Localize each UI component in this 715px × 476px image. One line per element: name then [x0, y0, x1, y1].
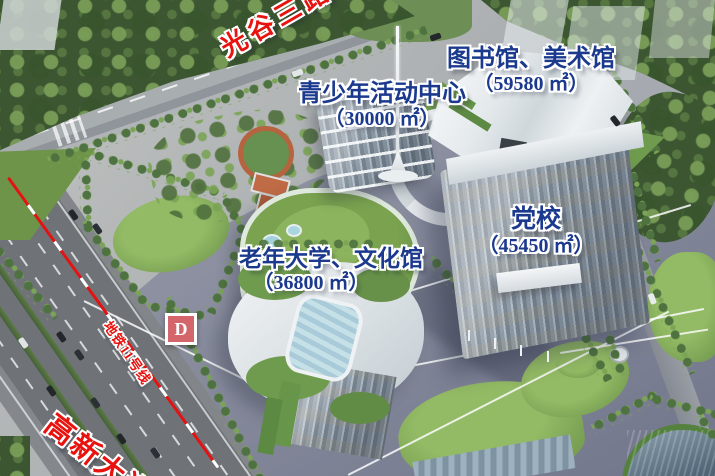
water-ripples	[627, 430, 715, 476]
tree-row	[79, 157, 96, 225]
label-elderly-culture: 老年大学、文化馆 （36800 ㎡）	[181, 245, 481, 296]
building-name: 老年大学、文化馆	[181, 245, 481, 272]
building-area: （59580 ㎡）	[381, 73, 681, 97]
aerial-site-plan: D 光谷三路 高新大道 地铁11号线 青少年活动中心 （30000 ㎡） 图书馆…	[0, 0, 715, 476]
building-area: （36800 ㎡）	[161, 272, 461, 296]
roof-green-blob	[330, 392, 390, 424]
light-pole	[494, 338, 496, 349]
building-name: 党校	[386, 205, 686, 235]
building-name: 图书馆、美术馆	[381, 45, 681, 73]
label-library-art-museum: 图书馆、美术馆 （59580 ㎡）	[381, 45, 681, 97]
tree-patch	[0, 436, 30, 476]
light-pole	[468, 330, 470, 341]
light-pole	[520, 345, 522, 356]
metro-station-d-marker: D	[165, 313, 197, 345]
light-pole	[547, 351, 549, 362]
pond	[622, 424, 715, 476]
mast-skirt	[378, 170, 418, 182]
ghost-building	[0, 0, 62, 50]
station-letter: D	[175, 320, 188, 338]
building-area: （30000 ㎡）	[232, 108, 532, 132]
